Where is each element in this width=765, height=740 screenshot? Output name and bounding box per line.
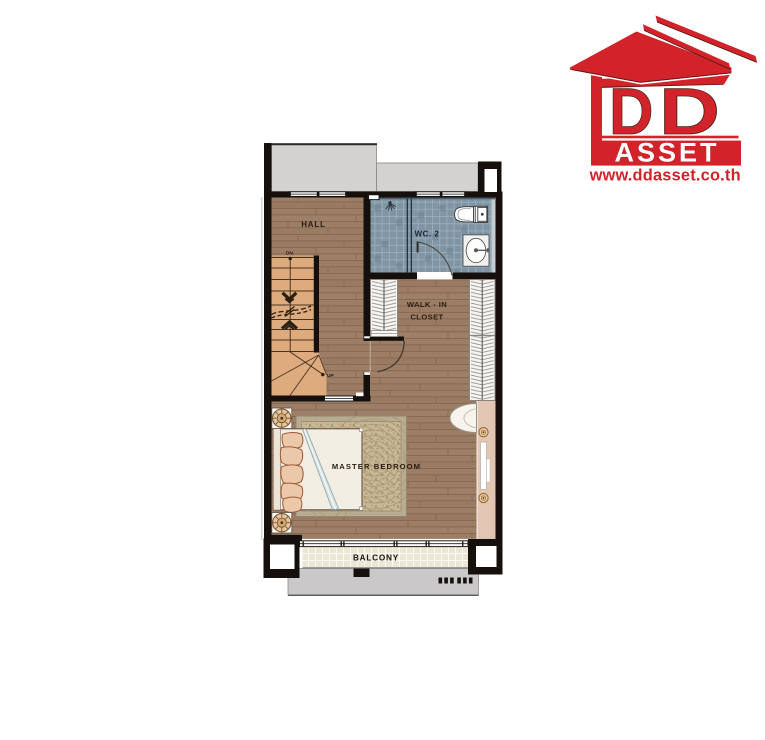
svg-text:CLOSET: CLOSET — [410, 313, 443, 322]
svg-text:BALCONY: BALCONY — [353, 554, 399, 563]
svg-text:UP: UP — [327, 373, 334, 379]
svg-text:WALK - IN: WALK - IN — [407, 300, 447, 309]
svg-text:MASTER BEDROOM: MASTER BEDROOM — [332, 462, 421, 471]
svg-text:HALL: HALL — [301, 220, 326, 229]
svg-text:DN.: DN. — [286, 251, 294, 257]
svg-text:ASSET: ASSET — [614, 138, 719, 168]
svg-text:WC. 2: WC. 2 — [415, 230, 440, 239]
svg-text:www.ddasset.co.th: www.ddasset.co.th — [589, 167, 741, 185]
